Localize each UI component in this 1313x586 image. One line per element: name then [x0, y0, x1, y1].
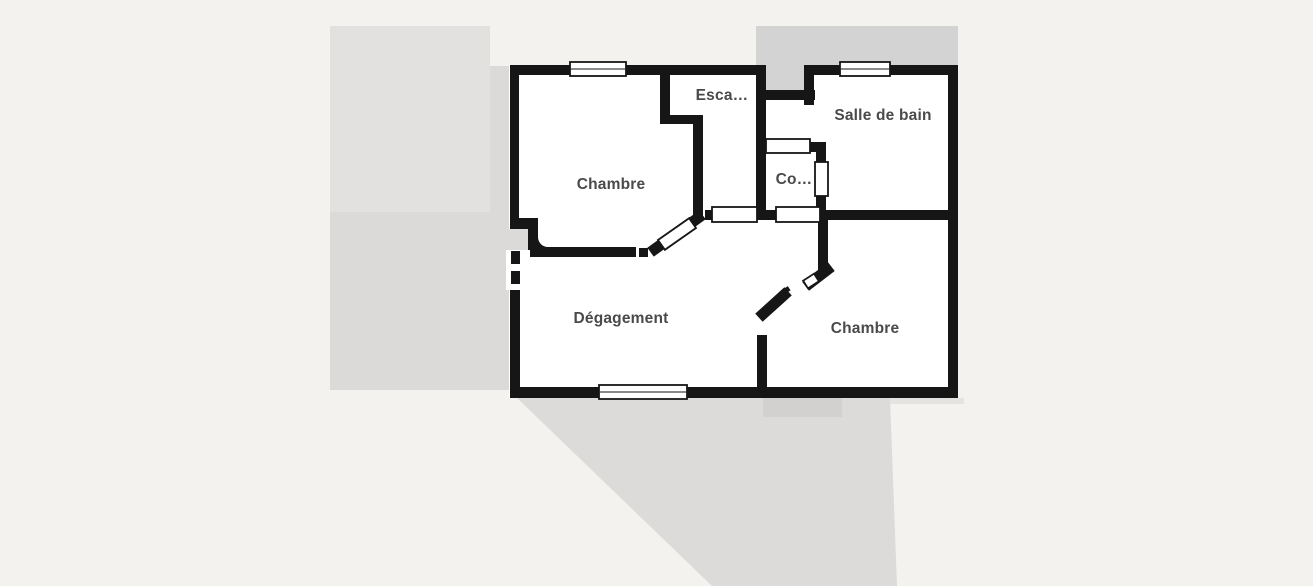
corridor-door-opening — [776, 207, 820, 222]
right-wall — [948, 65, 958, 398]
room-label-chambre-1: Chambre — [577, 176, 646, 194]
bg-shape-bottom-dark-patch — [763, 398, 842, 417]
floor-plan-canvas: Chambre Esca… Salle de bain Co… Dégageme… — [0, 0, 1313, 586]
bottom-wall — [510, 387, 958, 398]
left-wall-lower — [510, 290, 520, 387]
closet-top-opening — [766, 139, 810, 153]
floor-plan-drawing — [0, 0, 1313, 586]
landing-door-opening — [712, 207, 757, 222]
staircase-right-wall — [693, 115, 703, 220]
door-tick-degagement — [639, 248, 648, 257]
room-label-chambre-2: Chambre — [831, 320, 900, 338]
chambre2-wall-vertical-lower — [757, 335, 767, 388]
top-wall-left — [510, 65, 766, 75]
room-label-co: Co… — [776, 171, 813, 189]
room-label-escalier: Esca… — [696, 87, 749, 105]
entry-notch — [766, 65, 804, 92]
step-wall-vertical — [528, 218, 538, 252]
room-label-salle-de-bain: Salle de bain — [834, 107, 931, 125]
dashed-opening — [506, 250, 530, 290]
closet-right-door — [815, 162, 828, 196]
step-notch — [509, 229, 528, 252]
bathroom-left-wall — [804, 65, 814, 105]
bg-shape-left-upper — [330, 26, 490, 212]
bg-shape-bottom-edge — [890, 398, 964, 404]
left-wall-upper — [510, 65, 519, 218]
room-label-degagement: Dégagement — [573, 310, 668, 328]
bg-shape-top-right — [756, 26, 958, 65]
degagement-top-wall — [528, 247, 636, 257]
bg-shape-left-lower — [330, 212, 490, 390]
bg-shape-left-strip — [490, 66, 509, 390]
bg-shape-bottom — [517, 398, 897, 586]
